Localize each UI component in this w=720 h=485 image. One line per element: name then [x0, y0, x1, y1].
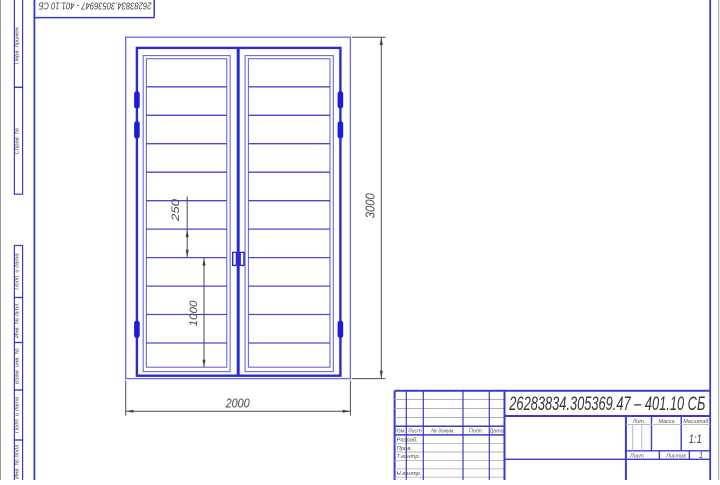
svg-text:№ докум.: № докум.: [431, 429, 455, 435]
svg-text:Лист: Лист: [629, 454, 644, 460]
svg-text:Изм.: Изм.: [394, 429, 406, 435]
svg-text:Подп. и дата: Подп. и дата: [15, 396, 21, 433]
svg-text:Дата: Дата: [488, 429, 503, 435]
svg-text:Подп. и дата: Подп. и дата: [15, 253, 21, 290]
svg-text:Масса: Масса: [659, 419, 675, 425]
svg-text:3000: 3000: [363, 193, 378, 219]
svg-text:26283834.305369.47 – 401.10 СБ: 26283834.305369.47 – 401.10 СБ: [509, 394, 706, 415]
svg-text:Н.контр.: Н.контр.: [397, 471, 422, 477]
svg-text:Перв. примен.: Перв. примен.: [15, 26, 21, 65]
svg-text:Инв. № подл.: Инв. № подл.: [15, 443, 21, 479]
svg-text:Подп.: Подп.: [469, 429, 483, 435]
svg-text:1: 1: [699, 451, 703, 460]
svg-text:Листов: Листов: [665, 454, 686, 460]
svg-text:Взам. инв. №: Взам. инв. №: [15, 348, 21, 384]
svg-text:1000: 1000: [188, 300, 200, 327]
svg-text:Справ. №: Справ. №: [15, 128, 21, 154]
svg-text:2000: 2000: [225, 395, 250, 410]
svg-text:Т.контр.: Т.контр.: [397, 454, 421, 460]
svg-text:Инв. № дубл.: Инв. № дубл.: [15, 302, 21, 338]
svg-text:Масштаб: Масштаб: [683, 419, 709, 425]
svg-text:1:1: 1:1: [689, 432, 702, 446]
svg-text:Пров.: Пров.: [397, 446, 413, 452]
svg-text:Разраб.: Разраб.: [397, 437, 418, 443]
svg-text:250: 250: [170, 198, 182, 222]
svg-text:26283834.30536947 - 401.10 СБ: 26283834.30536947 - 401.10 СБ: [38, 0, 152, 12]
svg-text:Лит.: Лит.: [632, 419, 646, 425]
svg-text:Лист: Лист: [407, 429, 422, 435]
